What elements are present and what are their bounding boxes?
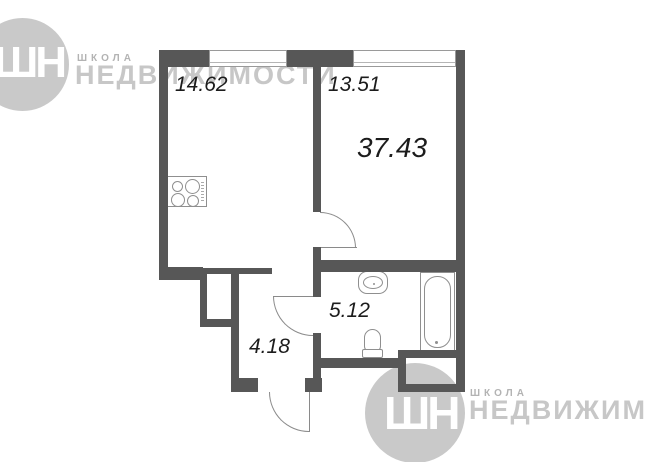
wall-hallway-bottom-left: [231, 378, 258, 392]
stove-icon: [167, 176, 207, 207]
stove-label-strip: [201, 182, 204, 202]
wall-left: [159, 50, 168, 280]
wall-bathroom-bottom: [313, 358, 403, 368]
wall-partition-upper: [313, 67, 321, 212]
area-label-room: 13.51: [328, 73, 381, 97]
area-label-total: 37.43: [357, 132, 427, 164]
area-label-hallway: 4.18: [249, 335, 290, 359]
door-room-swing-arc: [320, 212, 356, 248]
door-bathroom-swing-arc: [273, 296, 313, 336]
door-entrance-leaf: [309, 392, 310, 432]
wall-hallway-bottom-right: [305, 378, 322, 392]
window-kitchen: [209, 50, 287, 67]
area-label-kitchen-living: 14.62: [175, 73, 228, 97]
area-label-bathroom: 5.12: [329, 299, 370, 323]
wall-shaft-bottom: [398, 384, 457, 392]
wall-right: [456, 50, 465, 392]
wall-shaft-top: [398, 350, 457, 358]
sink-icon: [358, 271, 388, 294]
toilet-icon: [364, 329, 381, 358]
wall-kitchen-bottom: [159, 267, 203, 280]
bathtub-icon: [420, 272, 455, 352]
brand-name-bottom: НЕДВИЖИМОСТ: [469, 395, 646, 426]
wall-hallway-left: [231, 268, 239, 392]
brand-monogram-top: ШН: [0, 38, 64, 88]
wall-partition-middle: [313, 247, 321, 297]
wall-shaft-left: [398, 358, 406, 384]
brand-monogram-bottom: ШН: [384, 386, 457, 440]
wall-bathroom-top: [321, 260, 456, 272]
door-entrance-swing-arc: [269, 392, 309, 432]
floor-plan: ШН ШКОЛА НЕДВИЖИМОСТИ ШН ШКОЛА НЕДВИЖИМО…: [0, 0, 646, 462]
window-room: [353, 50, 456, 67]
wall-top-middle-segment: [287, 50, 353, 67]
